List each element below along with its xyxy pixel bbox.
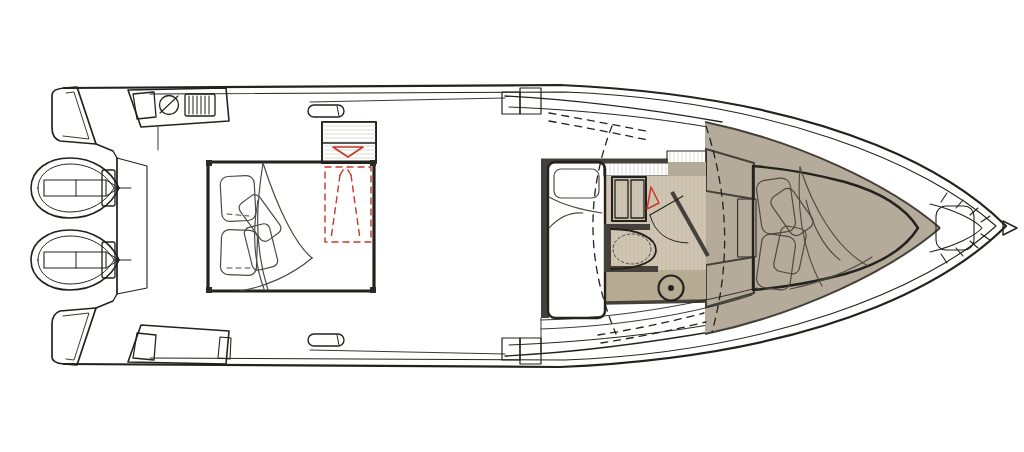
transom-box xyxy=(117,158,147,294)
anchor-locker-lid xyxy=(936,206,974,250)
transom-seat-hatch xyxy=(133,333,156,360)
transom-notch xyxy=(96,144,117,308)
mid-berth-pillow xyxy=(554,169,599,198)
bow-band-hatch xyxy=(705,122,940,334)
swim-platform-port-inner xyxy=(63,92,89,139)
windshield-outer-bottom xyxy=(505,330,722,356)
gunwale-line-top xyxy=(310,98,505,102)
outboard-engine-starboard xyxy=(31,230,131,290)
wet-bar-hatch xyxy=(133,92,156,119)
pillow xyxy=(220,229,258,275)
side-steps xyxy=(502,88,541,364)
hardtop-dashes-top xyxy=(549,113,651,132)
bow-anchor-segments xyxy=(941,193,990,263)
swim-platform-port xyxy=(52,87,96,144)
mid-single-berth xyxy=(548,162,605,318)
grill-vent-icon xyxy=(185,94,215,116)
hardtop-dashes-top xyxy=(549,121,648,140)
side-step xyxy=(502,92,520,114)
head-wall-left xyxy=(604,224,611,272)
transom-seat-step xyxy=(218,337,231,359)
aft-cabin xyxy=(206,122,376,293)
companionway-steps xyxy=(322,122,376,163)
outboard-engines xyxy=(31,158,131,290)
outboard-engine-port xyxy=(31,158,131,218)
bow-section xyxy=(705,122,974,334)
aft-berth xyxy=(208,162,374,291)
gunwale-line-bottom xyxy=(310,350,505,354)
aft-berth-pillows xyxy=(220,175,283,275)
headroom-hatch-outline xyxy=(325,167,371,242)
side-step xyxy=(502,338,520,360)
cabin-aft-sole-hatch xyxy=(604,270,706,303)
cabin-ledge-step xyxy=(668,162,706,177)
windshield-outer-top xyxy=(505,96,722,122)
windshield-inner-top xyxy=(509,107,708,127)
boat-floor-plan xyxy=(0,0,1024,452)
swim-platform-starboard-inner xyxy=(63,313,89,360)
swim-platform-starboard xyxy=(52,308,96,365)
floor-plan-canvas xyxy=(0,0,1024,452)
wet-bar-console xyxy=(128,88,229,150)
